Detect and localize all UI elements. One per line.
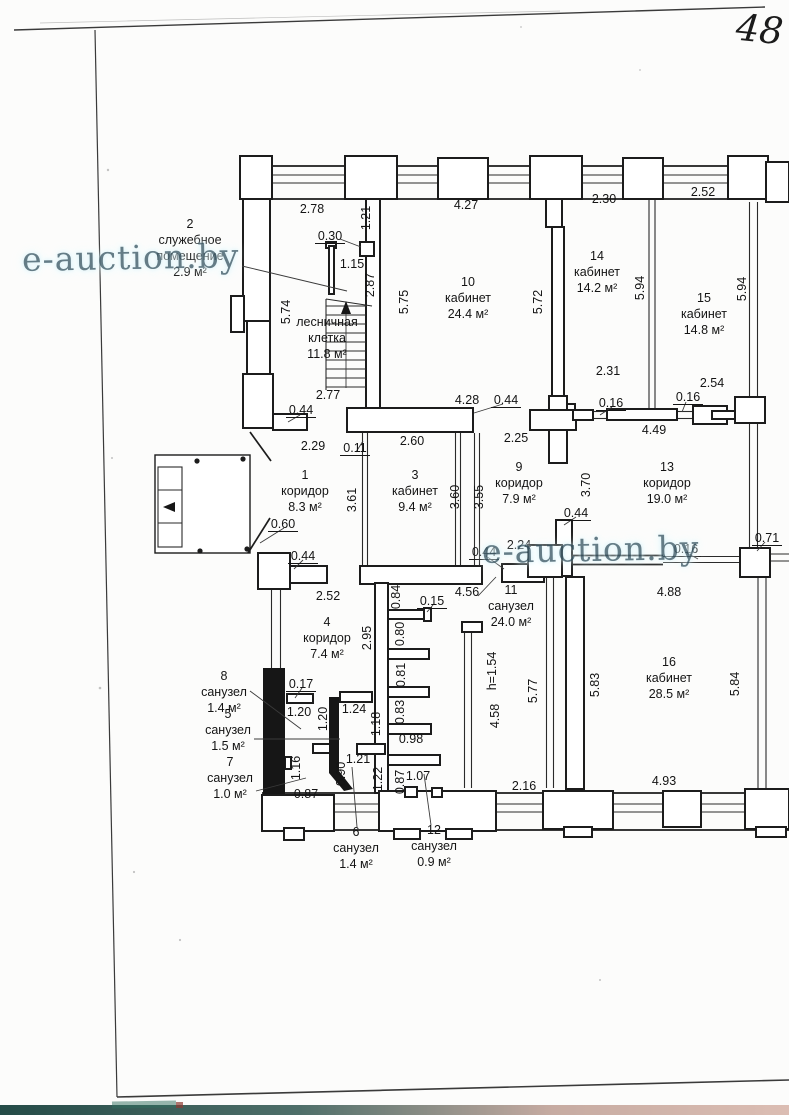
room-label: 2служебноепомещение2.9 м² [156,217,223,279]
dimension-label: 2.29 [301,439,325,453]
dimension-label: 0.87 [294,787,318,801]
porch-post [197,548,202,553]
dimension-label: 2.77 [316,388,340,402]
dimension-label: 5.75 [397,290,411,314]
dimension-label: 4.49 [642,423,666,437]
dimension-label: 1.21 [359,206,373,230]
room-label: 1коридор8.3 м² [281,468,329,514]
dimension-label: 5.84 [728,672,742,696]
entrance-porch [155,432,271,554]
dimension-label: 0.71 [755,531,779,545]
dimension-label: h=1.54 [485,652,499,691]
floor-plan: 2.781.214.272.302.520.301.152.875.745.75… [155,156,789,871]
dimension-label: 0.16 [676,390,700,404]
dimension-label: 5.77 [526,679,540,703]
dimension-label: 0.15 [420,594,444,608]
room-label: 8санузел1.4 м² [201,669,247,715]
dimension-label: 0.16 [674,542,698,556]
dimension-label: 1.21 [346,752,370,766]
dimension-label: 5.83 [588,673,602,697]
dimension-label: 2.24 [507,538,531,552]
room-label: 11санузел24.0 м² [488,583,534,629]
dimension-label: 2.60 [400,434,424,448]
room-label: 4коридор7.4 м² [303,615,351,661]
dimension-label: 0.60 [271,517,295,531]
dimension-label: 1.15 [340,257,364,271]
dimension-label: 2.31 [596,364,620,378]
dimension-label: 4.88 [657,585,681,599]
dimension-label: 0.98 [399,732,423,746]
porch-post [240,456,245,461]
room-label: 3кабинет9.4 м² [392,468,438,514]
room-label: 10кабинет24.4 м² [445,275,491,321]
dimension-label: 0.11 [343,441,366,455]
dimension-label: 4.93 [652,774,676,788]
dimension-label: 3.61 [345,488,359,512]
dimension-label: 2.52 [691,185,715,199]
dimension-label: 0.83 [393,700,407,724]
dimension-label: 5.94 [735,277,749,301]
dimension-label: 0.44 [494,393,518,407]
dimension-label: 0.44 [564,506,588,520]
dimension-label: 3.60 [448,485,462,509]
dimension-label: 5.74 [279,300,293,324]
dimension-label: 0.81 [394,663,408,687]
dimension-label: 4.28 [455,393,479,407]
dimension-label: 2.54 [700,376,724,390]
room-label: 16кабинет28.5 м² [646,655,692,701]
dimension-label: 4.27 [454,198,478,212]
dimension-label: 3.55 [472,485,486,509]
floor-plan-canvas: 2.781.214.272.302.520.301.152.875.745.75… [0,0,789,1115]
dimension-label: 2.16 [512,779,536,793]
dimension-label: 1.07 [406,769,430,783]
dimension-label: 0.80 [393,622,407,646]
dimension-label: 0.44 [472,545,496,559]
dimension-label: 2.95 [360,626,374,650]
room-label: 7санузел1.0 м² [207,755,253,801]
dimension-label: 2.25 [504,431,528,445]
porch-post [194,458,199,463]
room-label: 6санузел1.4 м² [333,825,379,871]
room-label: 13коридор19.0 м² [643,460,691,506]
dimension-label: 0.16 [599,396,623,410]
dimension-label: 0.17 [289,677,313,691]
dimension-label: 1.20 [316,707,330,731]
room-label: лесничнаяклетка11.8 м² [296,315,358,361]
dimension-label: 3.70 [579,473,593,497]
dimension-label: 1.24 [342,702,366,716]
dimension-label: 4.58 [488,704,502,728]
room-label: 14кабинет14.2 м² [574,249,620,295]
dimension-label: 1.18 [369,712,383,736]
dimension-label: 1.16 [289,756,303,780]
dimension-label: 5.72 [531,290,545,314]
dimension-label: 4.56 [455,585,479,599]
dimension-label: 5.94 [633,276,647,300]
dimension-label: 2.30 [592,192,616,206]
dimension-label: 1.22 [371,767,385,791]
room-label: 15кабинет14.8 м² [681,291,727,337]
dimension-label: 0.44 [289,403,313,417]
scanned-floor-plan-page: { "page": { "number_label": "48", "water… [0,0,789,1115]
dimension-label: 0.90 [334,762,348,786]
dimension-label: 0.84 [389,585,403,609]
page-number: 48 [734,6,785,54]
dimension-label: 2.52 [316,589,340,603]
dimension-label: 2.87 [363,273,377,297]
dimension-label: 1.20 [287,705,311,719]
dimension-label: 0.44 [291,549,315,563]
room-label: 9коридор7.9 м² [495,460,543,506]
dimension-label: 2.78 [300,202,324,216]
dimension-label: 0.30 [318,229,342,243]
